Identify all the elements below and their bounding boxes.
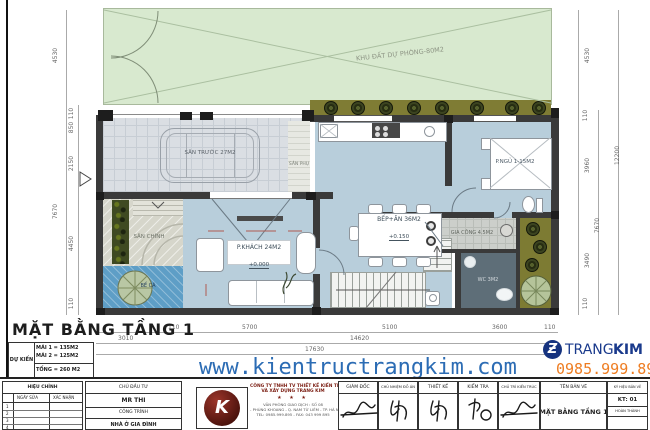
titleblock: HIỆU CHỈNH NGÀY SỬA XÁC NHẬN 1 2 3 4 CHỦ…: [0, 377, 650, 430]
signature-box-lead: CHỦ TRÌ KIẾN TRÚC: [498, 381, 540, 430]
wall: [455, 252, 461, 308]
porch-planting: [112, 200, 129, 264]
chair: [416, 257, 431, 267]
dim-line: [578, 10, 579, 315]
sofa-seam: [256, 281, 257, 303]
revision-row-num: 1: [6, 404, 9, 409]
plant-icon: [324, 101, 338, 115]
wall-stub: [302, 110, 314, 121]
signature-mark: [459, 395, 499, 427]
wall-stub: [98, 110, 113, 121]
nightstand: [481, 178, 491, 190]
signature-box-checker: KIỂM TRA: [458, 381, 498, 430]
signature-mark: [499, 395, 539, 427]
roof-summary-table: DỰ KIẾN MÁI 1 = 135M2 MÁI 2 = 125M2 TỔNG…: [8, 342, 94, 378]
wall-stub: [180, 112, 192, 120]
chair: [392, 257, 407, 267]
kitchen-level: +0.150: [389, 234, 409, 241]
dim-label: 4530: [584, 48, 591, 63]
living-label-box: P.KHÁCH 24M2 +0.000: [227, 240, 291, 265]
summary-divider: [34, 363, 93, 364]
column: [551, 211, 559, 219]
dim-label: 110: [582, 298, 589, 309]
dim-label: 7670: [52, 204, 59, 219]
summary-row2: MÁI 2 = 125M2: [36, 353, 79, 359]
aux-yard-label: SÂN PHỤ: [286, 162, 312, 167]
signature-role: CHỦ NHIỆM ĐỒ ÁN: [379, 382, 417, 394]
project-label: CÔNG TRÌNH: [86, 408, 181, 419]
plant-icon: [407, 101, 421, 115]
washbasin: [464, 256, 476, 268]
dim-label: 5100: [382, 324, 397, 331]
signature-mark: [379, 395, 419, 427]
entry-steps: [133, 199, 183, 216]
page-title: MẶT BẰNG TẦNG 1: [12, 320, 195, 339]
revision-row-line: [3, 410, 82, 411]
dim-label: 110: [582, 110, 589, 121]
wall: [96, 115, 103, 315]
drawing-name-header: TÊN BẢN VẼ: [541, 382, 606, 394]
window: [474, 115, 516, 122]
column: [551, 108, 559, 118]
signature-box-director: GIÁM ĐỐC: [338, 381, 378, 430]
armchair: [196, 238, 224, 272]
dim-line: [598, 110, 599, 315]
dim-label: 110: [68, 298, 75, 309]
revision-row-line: [3, 417, 82, 418]
plant-icon: [379, 101, 393, 115]
door-opening: [445, 186, 452, 212]
window: [334, 115, 392, 122]
client-box: CHỦ ĐẦU TƯ MR THI CÔNG TRÌNH NHÀ Ở GIA Đ…: [85, 381, 182, 430]
revision-row-line: [3, 424, 82, 425]
client-name: MR THI: [86, 394, 181, 408]
burner: [383, 126, 388, 131]
living-level: +0.000: [249, 262, 269, 269]
burner: [383, 132, 388, 137]
fridge: [320, 124, 338, 138]
dim-label: 110: [68, 108, 75, 119]
summary-row3: TỔNG = 260 M2: [36, 367, 80, 373]
column: [96, 308, 105, 315]
dim-label: 3490: [584, 253, 591, 268]
phone-number[interactable]: 0985.999.895: [556, 360, 650, 378]
revision-col-date: NGÀY SỬA: [17, 395, 38, 400]
dim-line: [96, 343, 558, 344]
brand-trang: TRANG: [565, 342, 614, 358]
dim-label: 3600: [492, 324, 507, 331]
company-text: CÔNG TY TNHH TV THIẾT KẾ KIẾN TRÚC VÀ XÂ…: [250, 384, 336, 417]
plant-icon: [526, 222, 540, 236]
code-status: HOÀN THÀNH: [608, 407, 647, 417]
drawing-code-box: KÝ HIỆU BẢN VẼ KT: 01 HOÀN THÀNH: [607, 381, 648, 430]
reserve-land: [103, 8, 552, 105]
kitchen-label-box: BẾP+ĂN 36M2 +0.150: [362, 216, 436, 238]
column: [306, 192, 316, 200]
project-name: NHÀ Ở GIA ĐÌNH: [86, 419, 181, 430]
chair: [392, 204, 407, 214]
dim-label: 2150: [68, 156, 75, 171]
toilet: [496, 288, 513, 301]
wc-label: WC 3M2: [468, 277, 508, 283]
dim-label: 4450: [68, 236, 75, 251]
revision-row-num: 4: [6, 425, 9, 430]
signature-role: KIỂM TRA: [459, 382, 497, 394]
summary-label-cell: DỰ KIẾN: [9, 343, 35, 377]
company-line2: VÀ XÂY DỰNG TRANG KIM: [250, 389, 336, 394]
wall-stub: [200, 112, 213, 120]
plant-icon: [351, 101, 365, 115]
drawing-name-box: TÊN BẢN VẼ MẶT BẰNG TẦNG 1: [540, 381, 607, 430]
plant-icon: [435, 101, 449, 115]
chair: [368, 257, 383, 267]
dim-line: [78, 105, 79, 315]
signature-mark: [419, 395, 459, 427]
understair-basin-bowl: [429, 294, 437, 302]
revision-subheader: NGÀY SỬA XÁC NHẬN: [3, 394, 82, 403]
company-logo-box: K: [196, 387, 248, 429]
dim-label: 850: [68, 122, 75, 133]
sofa: [228, 280, 314, 306]
kitchen-sink: [424, 126, 435, 137]
dim-label: 4530: [52, 48, 59, 63]
toilet: [522, 196, 535, 213]
wall: [96, 308, 558, 315]
signature-role: CHỦ TRÌ KIẾN TRÚC: [499, 382, 539, 394]
revision-col-confirm: XÁC NHẬN: [53, 395, 74, 400]
bedroom-label: P.NGỦ 1-15M2: [487, 159, 543, 165]
dim-label: 7670: [594, 218, 601, 233]
chair: [349, 226, 359, 241]
sofa-seam: [284, 281, 285, 303]
floor-plan-sheet: KHU ĐẤT DỰ PHÒNG-80M2: [0, 0, 650, 430]
chair: [368, 204, 383, 214]
signature-box-manager: CHỦ NHIỆM ĐỒ ÁN: [378, 381, 418, 430]
revision-row-num: 3: [6, 418, 9, 423]
chair: [416, 204, 431, 214]
utility-label: GIA CÔNG 4.5M2: [442, 230, 502, 236]
door-opening: [494, 212, 512, 218]
front-yard-label: SÂN TRƯỚC 27M2: [172, 150, 248, 156]
summary-row1: MÁI 1 = 135M2: [36, 345, 79, 351]
dim-label: 17630: [305, 346, 324, 353]
trangkim-logo: Ƶ TRANG KIM: [543, 340, 648, 360]
burner: [375, 126, 380, 131]
company-stars: ★ ★ ★: [250, 395, 336, 401]
plant-icon: [505, 101, 519, 115]
plant-icon: [533, 240, 547, 254]
plant-icon: [470, 101, 484, 115]
revision-box: HIỆU CHỈNH NGÀY SỬA XÁC NHẬN 1 2 3 4: [2, 381, 83, 430]
brand-kim: KIM: [613, 342, 643, 358]
signature-mark: [339, 395, 379, 427]
dim-label: 14620: [350, 335, 369, 342]
aux-yard-floor: [288, 121, 310, 192]
chaise: [296, 232, 316, 274]
dim-line: [66, 10, 67, 315]
column: [96, 192, 104, 200]
signature-box-designer: THIẾT KẾ: [418, 381, 458, 430]
fish-pond-label: BỂ CÁ: [135, 283, 161, 289]
code-value: KT: 01: [608, 394, 647, 407]
living-label: P.KHÁCH 24M2: [228, 244, 290, 251]
drawing-name: MẶT BẰNG TẦNG 1: [541, 394, 606, 430]
signature-role: GIÁM ĐỐC: [339, 382, 377, 394]
plant-icon: [532, 101, 546, 115]
burner: [375, 132, 380, 137]
revision-header: HIỆU CHỈNH: [3, 382, 82, 394]
column: [550, 308, 559, 315]
signature-role: THIẾT KẾ: [419, 382, 457, 394]
stairs: [330, 272, 426, 308]
wall: [516, 218, 520, 308]
nightstand: [481, 138, 491, 150]
kitchen-label: BẾP+ĂN 36M2: [362, 216, 436, 223]
client-header: CHỦ ĐẦU TƯ: [86, 382, 181, 394]
dim-label: 12200: [614, 146, 621, 165]
main-yard-label: SÂN CHÍNH: [126, 234, 172, 240]
company-logo-icon: K: [204, 390, 240, 426]
tv-cabinet: [237, 216, 283, 221]
company-addr3: TEL: 0985.999.895 - FAX: 043 999 895: [250, 412, 336, 417]
column: [312, 307, 321, 315]
revision-row-num: 2: [6, 411, 9, 416]
dim-label: 110: [544, 324, 555, 331]
entry-opening: [210, 192, 292, 199]
dim-label: 5700: [242, 324, 257, 331]
code-header: KÝ HIỆU BẢN VẼ: [608, 382, 647, 394]
dim-label: 3960: [584, 158, 591, 173]
plant-icon: [525, 258, 539, 272]
company-box: K CÔNG TY TNHH TV THIẾT KẾ KIẾN TRÚC VÀ …: [184, 381, 337, 430]
toilet-tank: [536, 198, 543, 213]
trangkim-logo-icon: Ƶ: [543, 340, 562, 359]
